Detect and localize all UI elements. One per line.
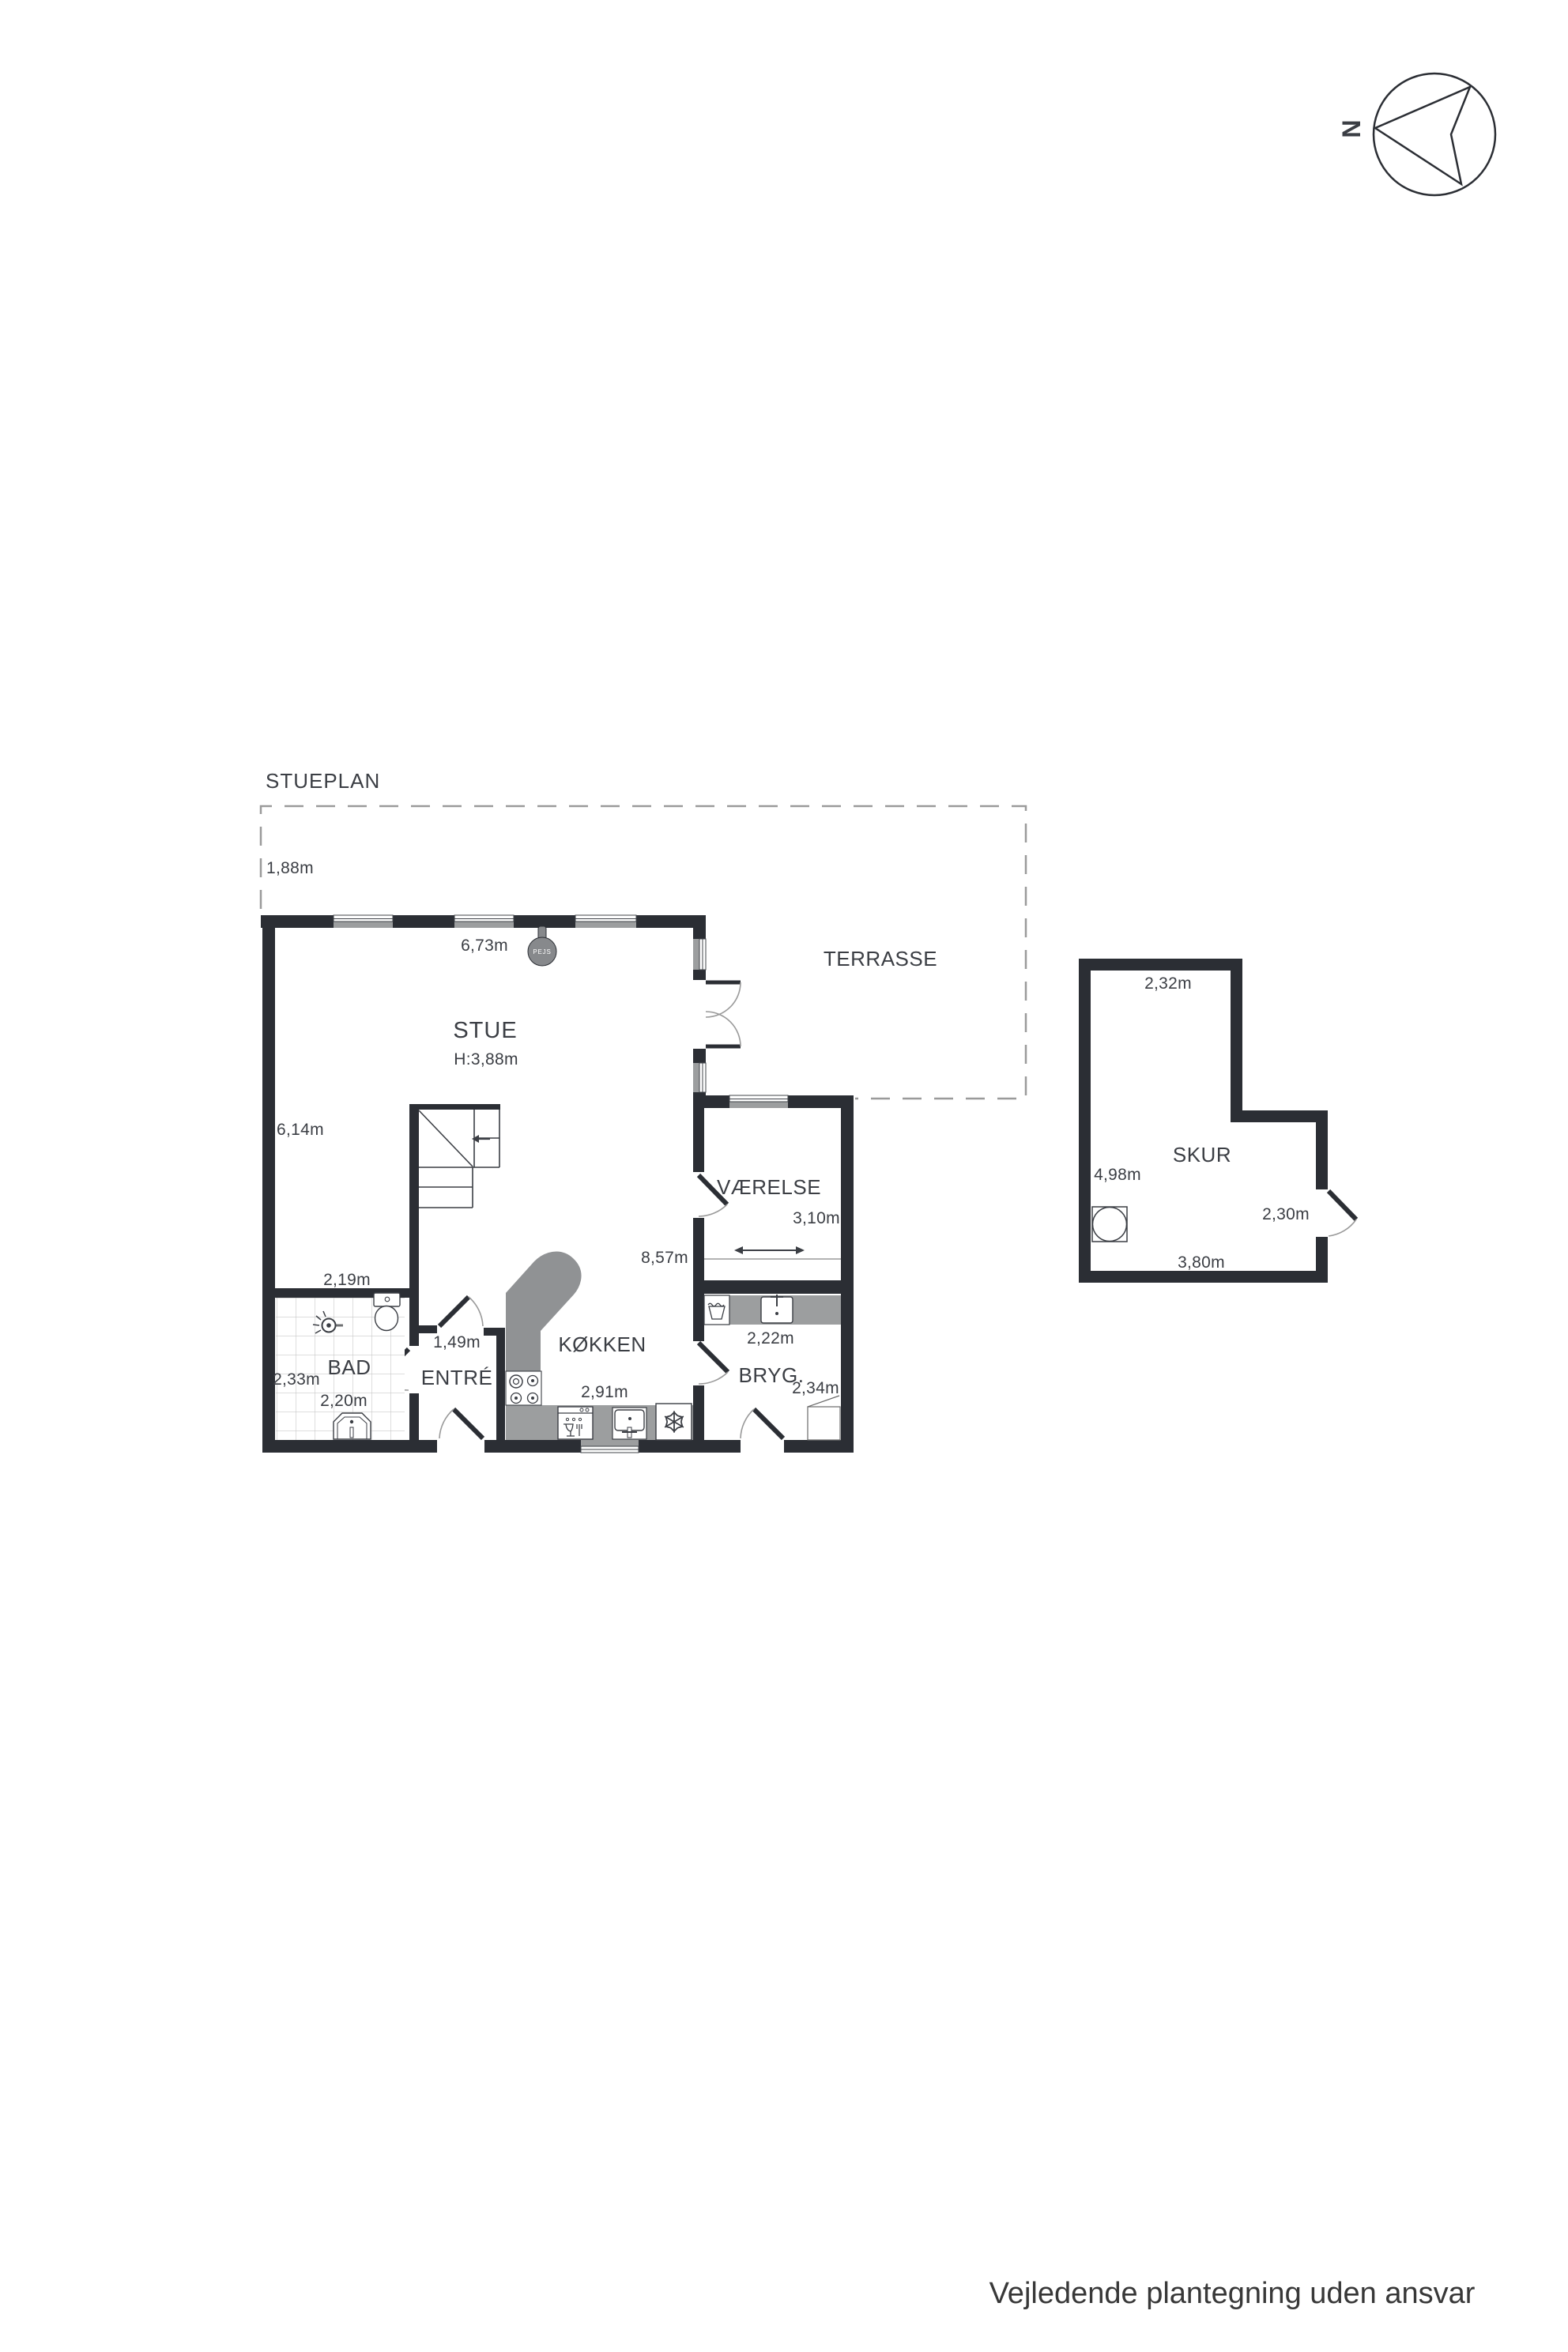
window-icon [693, 1063, 706, 1092]
dim-entre-width: 1,49m [433, 1333, 481, 1351]
dim-skur-depth: 4,98m [1094, 1166, 1141, 1184]
vaerelse-annotations [704, 1246, 841, 1259]
dim-bryg-width: 2,22m [747, 1329, 794, 1347]
dim-skur-width-bottom: 3,80m [1178, 1253, 1225, 1272]
dim-bad-depth: 2,33m [273, 1370, 320, 1389]
freezer-icon [656, 1404, 692, 1440]
window-icon [334, 915, 393, 928]
compass-icon: N [1337, 73, 1495, 195]
window-icon [581, 1440, 639, 1453]
cooktop-icon [506, 1371, 541, 1405]
water-heater-icon [808, 1396, 840, 1440]
room-label-entre: ENTRÉ [421, 1366, 493, 1389]
laundry-basket-icon [704, 1295, 729, 1325]
dim-terrace-depth: 1,88m [266, 859, 314, 877]
room-label-stue: STUE [453, 1018, 517, 1043]
dim-skur-width-top: 2,32m [1144, 974, 1192, 993]
skur-walls [1079, 959, 1356, 1283]
dim-koekken-width: 2,91m [581, 1383, 628, 1401]
dim-stue-width: 6,73m [461, 937, 508, 955]
window-icon [575, 915, 636, 928]
compass-north-label: N [1337, 119, 1366, 138]
dim-bad-width-bottom: 2,20m [320, 1392, 367, 1410]
dim-bryg-depth: 2,34m [792, 1379, 839, 1397]
room-label-vaerelse: VÆRELSE [717, 1175, 821, 1199]
front-door-icon [439, 1409, 483, 1438]
bryg-sink-icon [761, 1295, 793, 1323]
window-icon [454, 915, 514, 928]
skur-door-icon [1329, 1191, 1356, 1236]
double-arrow-icon [734, 1246, 805, 1254]
stue-ceiling-height: H:3,88m [454, 1050, 518, 1069]
window-icon [693, 939, 706, 970]
dim-stue-depth: 6,14m [277, 1121, 324, 1139]
bryg-exterior-door-icon [741, 1409, 783, 1438]
room-label-bad: BAD [328, 1355, 371, 1379]
disclaimer-text: Vejledende plantegning uden ansvar [989, 2277, 1476, 2310]
dim-skur-door-side: 2,30m [1262, 1205, 1310, 1223]
window-icon [729, 1095, 788, 1108]
room-label-skur: SKUR [1173, 1143, 1231, 1167]
page-title: STUEPLAN [266, 769, 380, 793]
floorplan-page: N [0, 0, 1568, 2352]
fireplace-label: PEJS [533, 948, 551, 955]
bathroom-sink-icon [334, 1413, 371, 1439]
bryg-inner-door-icon [699, 1343, 728, 1384]
fireplace-icon: PEJS [528, 926, 556, 966]
floorplan-drawing: N [0, 0, 1568, 2352]
terrace-double-door-icon [706, 982, 741, 1046]
toilet-icon [374, 1293, 400, 1331]
dim-bad-width-top: 2,19m [323, 1271, 371, 1289]
dim-vaerelse-width: 3,10m [793, 1209, 840, 1227]
stairs-icon [419, 1110, 499, 1208]
room-label-terrasse: TERRASSE [824, 947, 937, 971]
room-label-koekken: KØKKEN [558, 1332, 646, 1356]
skur-tank-icon [1092, 1207, 1127, 1242]
entre-inner-door-icon [439, 1297, 483, 1326]
dishwasher-icon [558, 1407, 593, 1439]
kitchen-sink-icon [612, 1408, 646, 1439]
dim-house-depth: 8,57m [641, 1249, 688, 1267]
